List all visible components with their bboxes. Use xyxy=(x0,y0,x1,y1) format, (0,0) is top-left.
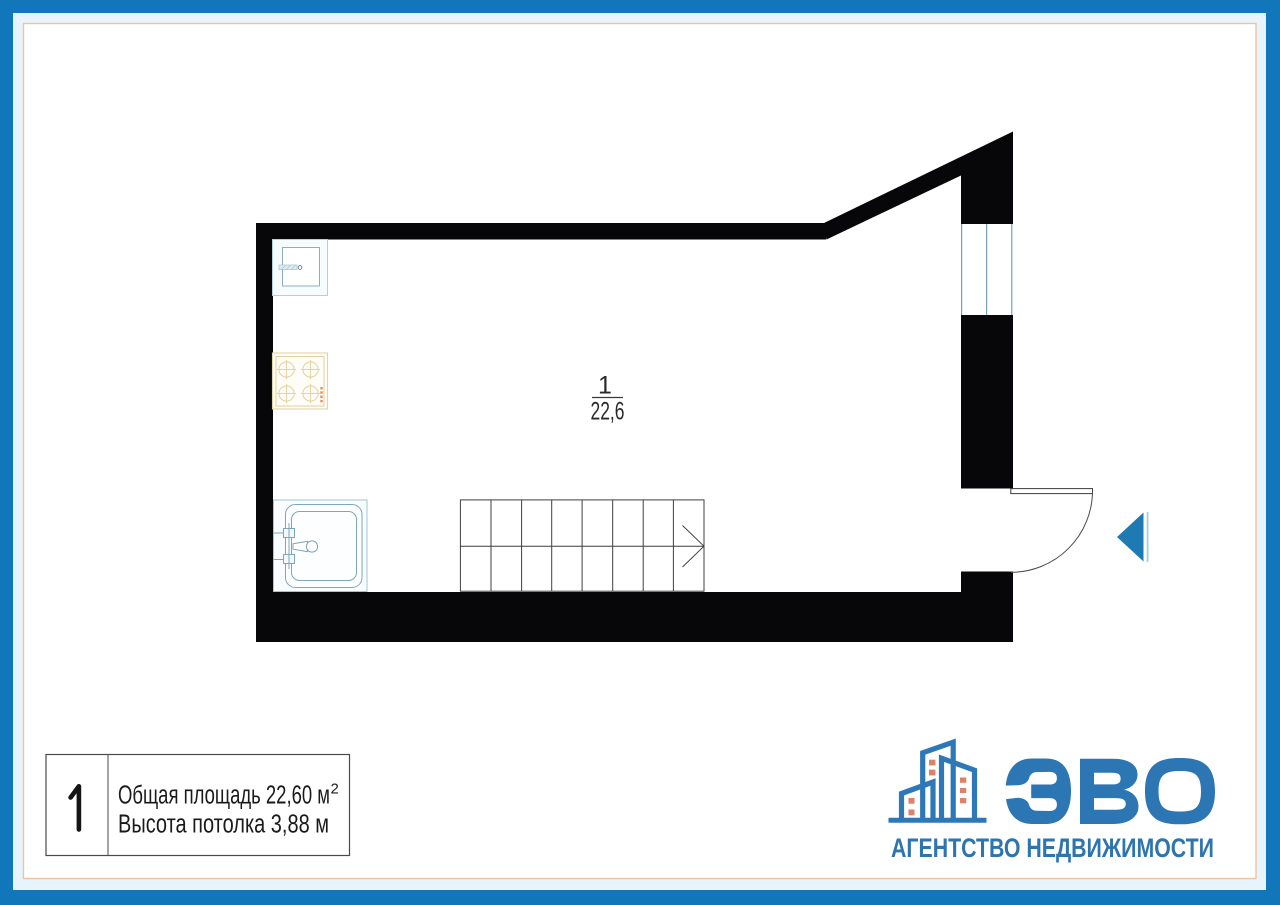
svg-text:Высота потолка 3,88 м: Высота потолка 3,88 м xyxy=(118,811,329,839)
svg-text:Общая площадь 22,60 м: Общая площадь 22,60 м xyxy=(118,782,330,810)
svg-text:1: 1 xyxy=(598,372,612,400)
svg-text:22,6: 22,6 xyxy=(591,398,625,426)
svg-text:АГЕНТСТВО НЕДВИЖИМОСТИ: АГЕНТСТВО НЕДВИЖИМОСТИ xyxy=(891,833,1214,863)
svg-text:2: 2 xyxy=(331,781,339,798)
